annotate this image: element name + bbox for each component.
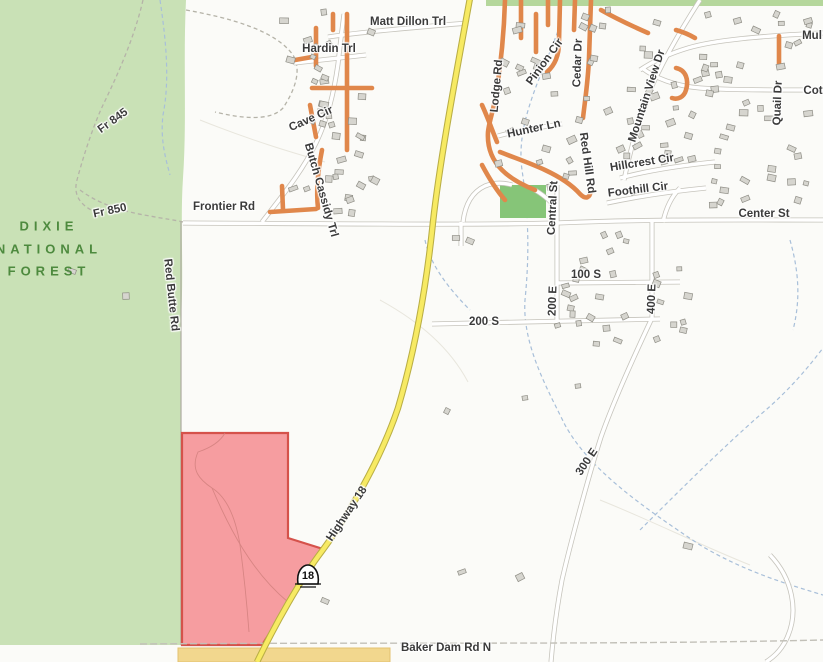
building xyxy=(704,11,711,18)
building xyxy=(671,81,678,88)
building xyxy=(579,257,588,264)
building xyxy=(787,179,795,186)
building xyxy=(711,62,718,66)
building xyxy=(318,108,327,114)
building xyxy=(768,165,777,172)
building xyxy=(724,76,733,83)
building xyxy=(599,23,606,29)
building xyxy=(660,154,670,162)
orange-roads xyxy=(270,0,779,212)
building xyxy=(616,145,625,154)
building xyxy=(719,134,728,140)
building xyxy=(522,395,528,400)
building xyxy=(624,153,630,159)
building xyxy=(778,21,784,25)
building xyxy=(517,69,527,76)
building xyxy=(765,116,774,121)
building xyxy=(593,341,600,346)
building xyxy=(787,145,796,153)
building xyxy=(767,174,776,182)
building xyxy=(314,65,322,73)
building xyxy=(332,132,340,139)
building xyxy=(334,208,343,214)
red-parcel[interactable] xyxy=(182,433,323,645)
building xyxy=(671,322,677,328)
building xyxy=(578,266,587,275)
building xyxy=(714,148,721,154)
building xyxy=(569,294,578,302)
building xyxy=(717,198,724,206)
building xyxy=(627,87,636,92)
building xyxy=(776,63,785,70)
building xyxy=(321,9,327,16)
building xyxy=(665,118,675,127)
building xyxy=(720,187,729,194)
building xyxy=(566,135,577,145)
building xyxy=(674,157,683,163)
building xyxy=(326,114,332,119)
building xyxy=(758,105,764,111)
building xyxy=(521,118,529,126)
building xyxy=(736,62,744,69)
building xyxy=(600,231,607,239)
building xyxy=(348,209,355,216)
building xyxy=(642,125,650,130)
building xyxy=(348,118,356,125)
building xyxy=(613,337,622,344)
building xyxy=(627,118,634,125)
building xyxy=(579,22,589,31)
building xyxy=(709,202,717,208)
building xyxy=(326,40,333,46)
building xyxy=(595,294,604,300)
building xyxy=(444,407,451,414)
building xyxy=(679,327,687,334)
tan-parcel[interactable] xyxy=(178,648,390,662)
building xyxy=(515,572,525,581)
building xyxy=(733,17,742,24)
building xyxy=(123,293,130,300)
building xyxy=(657,299,664,305)
building xyxy=(536,159,543,165)
building xyxy=(683,542,693,550)
building xyxy=(337,156,347,163)
building xyxy=(741,195,750,203)
building xyxy=(673,106,679,111)
building xyxy=(644,52,653,59)
building xyxy=(452,236,459,241)
building xyxy=(794,39,802,46)
building xyxy=(653,336,660,343)
building xyxy=(494,160,502,168)
building xyxy=(739,109,748,116)
building xyxy=(576,320,582,326)
building xyxy=(303,186,310,192)
building xyxy=(584,96,590,100)
building xyxy=(706,90,714,97)
building xyxy=(785,41,793,48)
building xyxy=(773,10,780,18)
building xyxy=(311,78,318,84)
building xyxy=(606,248,614,255)
route-18-shield-icon: 18 xyxy=(293,561,323,593)
building xyxy=(742,99,750,106)
building xyxy=(677,267,682,271)
building xyxy=(321,597,330,604)
building xyxy=(570,311,575,318)
building xyxy=(575,384,581,389)
building xyxy=(542,73,551,80)
building xyxy=(803,181,809,187)
building xyxy=(605,7,610,13)
building xyxy=(531,57,541,65)
forest-strip-top xyxy=(486,0,823,6)
building xyxy=(280,18,289,24)
building xyxy=(358,94,366,100)
building xyxy=(726,124,735,131)
building xyxy=(610,270,617,277)
building xyxy=(561,290,571,298)
building xyxy=(711,178,717,184)
building xyxy=(688,111,696,119)
building xyxy=(688,155,697,162)
building xyxy=(590,55,598,62)
building xyxy=(684,132,693,140)
building xyxy=(566,157,573,165)
building xyxy=(325,176,332,183)
building xyxy=(458,569,467,576)
clearing-boundary xyxy=(186,10,297,118)
map-graphics xyxy=(0,0,823,662)
building xyxy=(699,54,707,60)
building xyxy=(542,145,551,153)
building xyxy=(715,71,722,78)
building xyxy=(356,181,366,190)
building xyxy=(680,319,686,325)
building xyxy=(328,122,335,128)
building xyxy=(356,133,365,141)
building xyxy=(751,26,761,34)
building xyxy=(547,184,553,191)
building xyxy=(715,165,721,169)
building xyxy=(693,76,702,83)
building xyxy=(653,19,661,26)
building xyxy=(623,239,629,244)
building xyxy=(573,275,580,282)
route-18-number: 18 xyxy=(293,570,323,582)
building xyxy=(629,187,639,195)
map-canvas[interactable]: 18 Matt Dillon TrlHardin TrlCave CirButc… xyxy=(0,0,823,662)
building xyxy=(603,107,612,116)
building xyxy=(551,92,558,97)
building xyxy=(303,36,312,44)
forest-area xyxy=(0,0,186,645)
building xyxy=(684,292,693,300)
building xyxy=(319,101,329,108)
building xyxy=(660,143,668,148)
building xyxy=(615,231,622,239)
building xyxy=(465,237,474,245)
building xyxy=(794,153,802,160)
building xyxy=(354,151,363,159)
building xyxy=(640,46,646,51)
building xyxy=(603,325,610,332)
building xyxy=(335,169,344,174)
building xyxy=(740,176,750,184)
building xyxy=(333,174,339,180)
building xyxy=(503,87,511,95)
building xyxy=(803,110,813,117)
building xyxy=(794,196,802,204)
